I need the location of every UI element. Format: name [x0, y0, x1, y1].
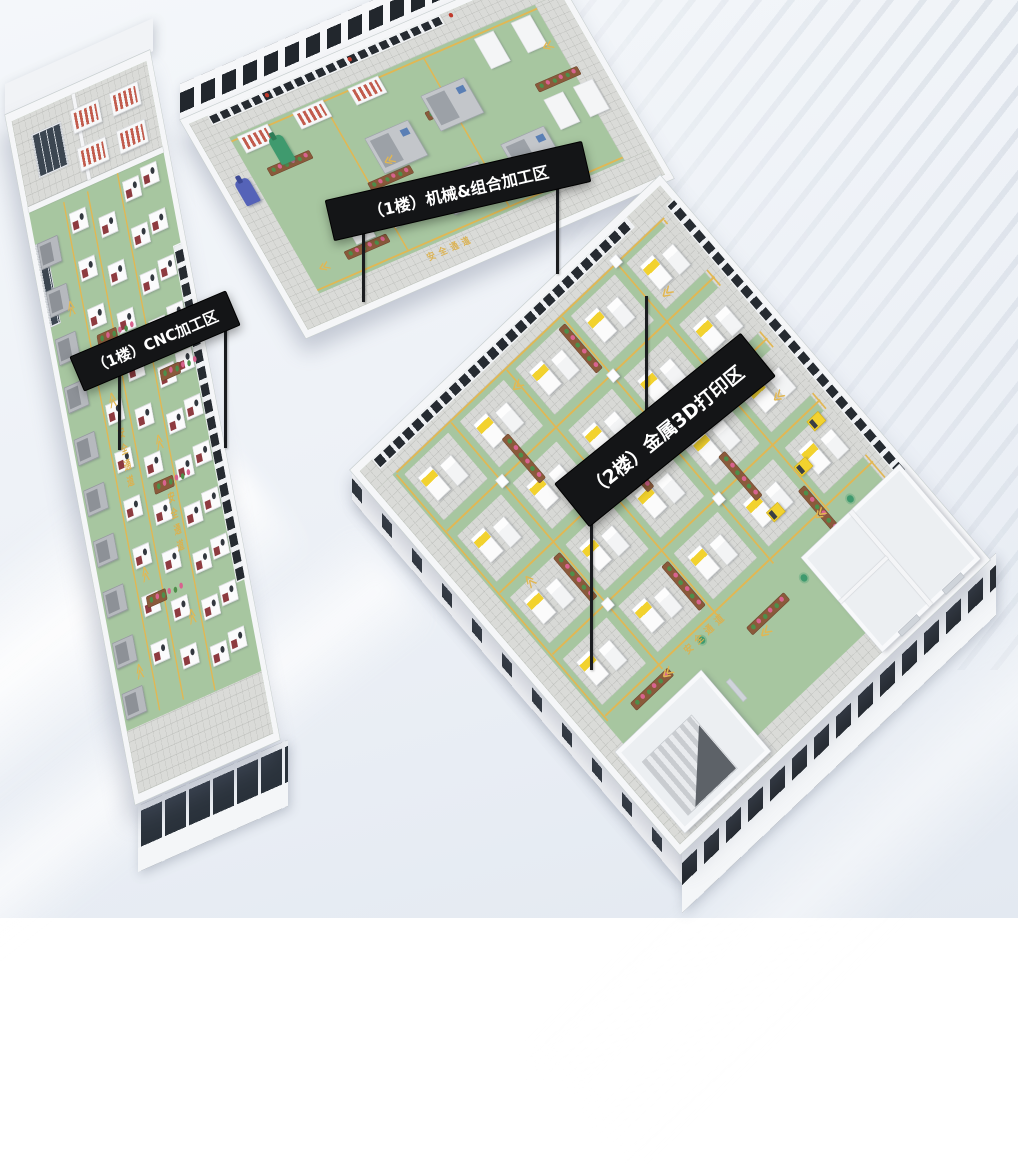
machine-gray	[74, 431, 99, 466]
machine-cnc	[183, 500, 203, 528]
workbench	[544, 91, 581, 130]
machine-big	[421, 77, 485, 131]
machine-cnc	[184, 393, 204, 421]
machine-cnc	[201, 486, 221, 514]
machine-cnc	[192, 440, 212, 468]
machine-cnc	[227, 625, 247, 653]
machine-cnc	[123, 494, 143, 522]
machine-cnc	[107, 259, 127, 287]
machine-cnc	[140, 268, 160, 296]
machine-cnc	[210, 532, 230, 560]
workbench	[474, 31, 511, 70]
machine-cnc	[180, 642, 200, 670]
machine-cnc	[192, 547, 212, 575]
machine-gray	[93, 533, 118, 568]
machine-cnc	[175, 454, 195, 482]
robot-green	[267, 133, 296, 165]
machine-cnc	[157, 254, 177, 282]
machine-cnc	[144, 450, 164, 478]
machine-cnc	[166, 407, 186, 435]
chevron: ≪	[757, 623, 775, 643]
machine-gray	[37, 235, 62, 270]
machine-cnc	[78, 255, 98, 283]
machine-cnc	[87, 302, 107, 330]
plant	[799, 573, 809, 583]
sign-pole	[224, 320, 227, 448]
chevron: ≪	[316, 259, 333, 275]
sign-pole	[590, 520, 593, 670]
machine-big	[365, 120, 429, 174]
machine-cnc	[219, 579, 239, 607]
machine-cnc	[210, 640, 230, 668]
machine-cnc	[69, 207, 89, 235]
factory-scene: ≪≪≪安全通道 安全通道安全通道≪≪≪≪≪≪ 安全通道安全通道≪≪≪≪≪≪≪ （…	[0, 0, 1018, 918]
machine-cnc	[131, 221, 151, 249]
chevron: ≪	[540, 38, 557, 54]
machine-gray	[103, 583, 128, 618]
sign-pole	[118, 366, 121, 450]
chevron: ≪	[139, 564, 152, 585]
machine-cnc	[150, 638, 170, 666]
machine-gray	[122, 685, 147, 720]
machine-cnc	[98, 211, 118, 239]
machine-cnc	[201, 593, 221, 621]
machine-cnc	[149, 207, 169, 235]
machine-cnc	[135, 402, 155, 430]
machine-cnc	[140, 161, 160, 189]
chevron: ≪	[186, 606, 199, 627]
chevron: ≪	[133, 661, 146, 682]
chevron: ≪	[153, 432, 166, 453]
machine-gray	[83, 482, 108, 517]
door	[726, 678, 747, 702]
machine-cnc	[122, 175, 142, 203]
plant	[845, 494, 855, 504]
chevron: ≪	[65, 298, 78, 319]
